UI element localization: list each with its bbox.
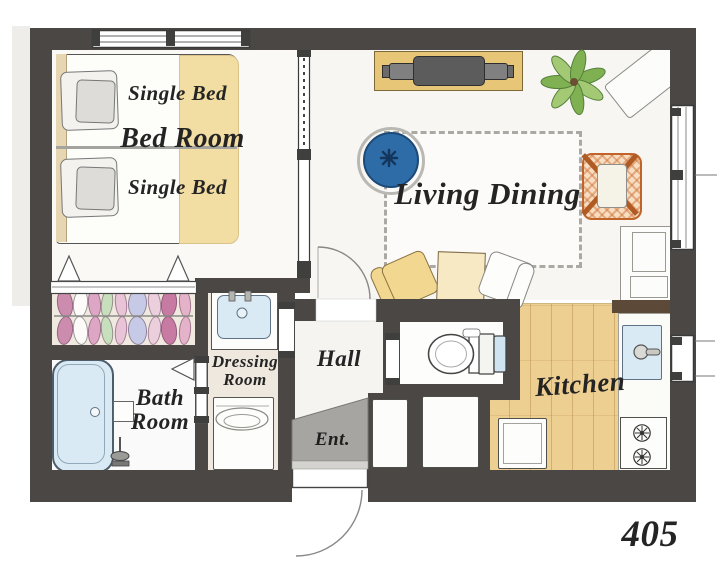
label-bedroom: Bed Room	[100, 124, 265, 153]
outer-wall-bottom	[30, 470, 292, 502]
label-bathroom: Bath Room	[126, 386, 194, 434]
label-entrance: Ent.	[305, 430, 360, 450]
label-bathroom-line1: Bath	[126, 386, 194, 410]
outer-wall-right	[670, 28, 696, 502]
outer-wall-bottom	[368, 470, 696, 502]
gas-stove	[620, 417, 667, 469]
toilet-room-floor	[400, 321, 503, 385]
unit-number: 405	[600, 516, 700, 555]
cabinet-drawer	[630, 276, 668, 298]
wall-hall-north	[295, 299, 316, 321]
wall-closet-bath	[52, 345, 195, 360]
label-dressing-line2: Room	[203, 371, 287, 389]
fridge-inner	[503, 423, 542, 464]
chair-cushion	[597, 164, 627, 208]
entry-door	[293, 467, 368, 557]
label-hall: Hall	[303, 347, 375, 371]
cabinet-drawer	[632, 232, 666, 272]
label-living-dining: Living Dining	[385, 178, 590, 211]
label-single-bed-top: Single Bed	[105, 82, 250, 104]
washing-machine	[213, 397, 274, 470]
floor-plan: Single Bed Bed Room Single Bed Living Di…	[0, 0, 720, 581]
storage-closet	[422, 396, 479, 468]
outer-wall-top	[30, 28, 696, 50]
label-single-bed-bottom: Single Bed	[105, 176, 250, 198]
paper-edge-shading	[12, 26, 30, 306]
label-bathroom-line2: Room	[126, 410, 194, 434]
sliding-partition	[297, 50, 311, 278]
bathtub-inner	[57, 364, 105, 464]
vanity-basin	[217, 295, 271, 339]
outer-wall-left	[30, 28, 52, 502]
tv-icon	[413, 56, 485, 86]
dining-table	[436, 251, 486, 304]
label-dressing-line1: Dressing	[203, 353, 287, 371]
label-dressing-room: Dressing Room	[203, 353, 287, 389]
storage-closet	[372, 399, 408, 468]
counter-edge	[612, 300, 670, 313]
